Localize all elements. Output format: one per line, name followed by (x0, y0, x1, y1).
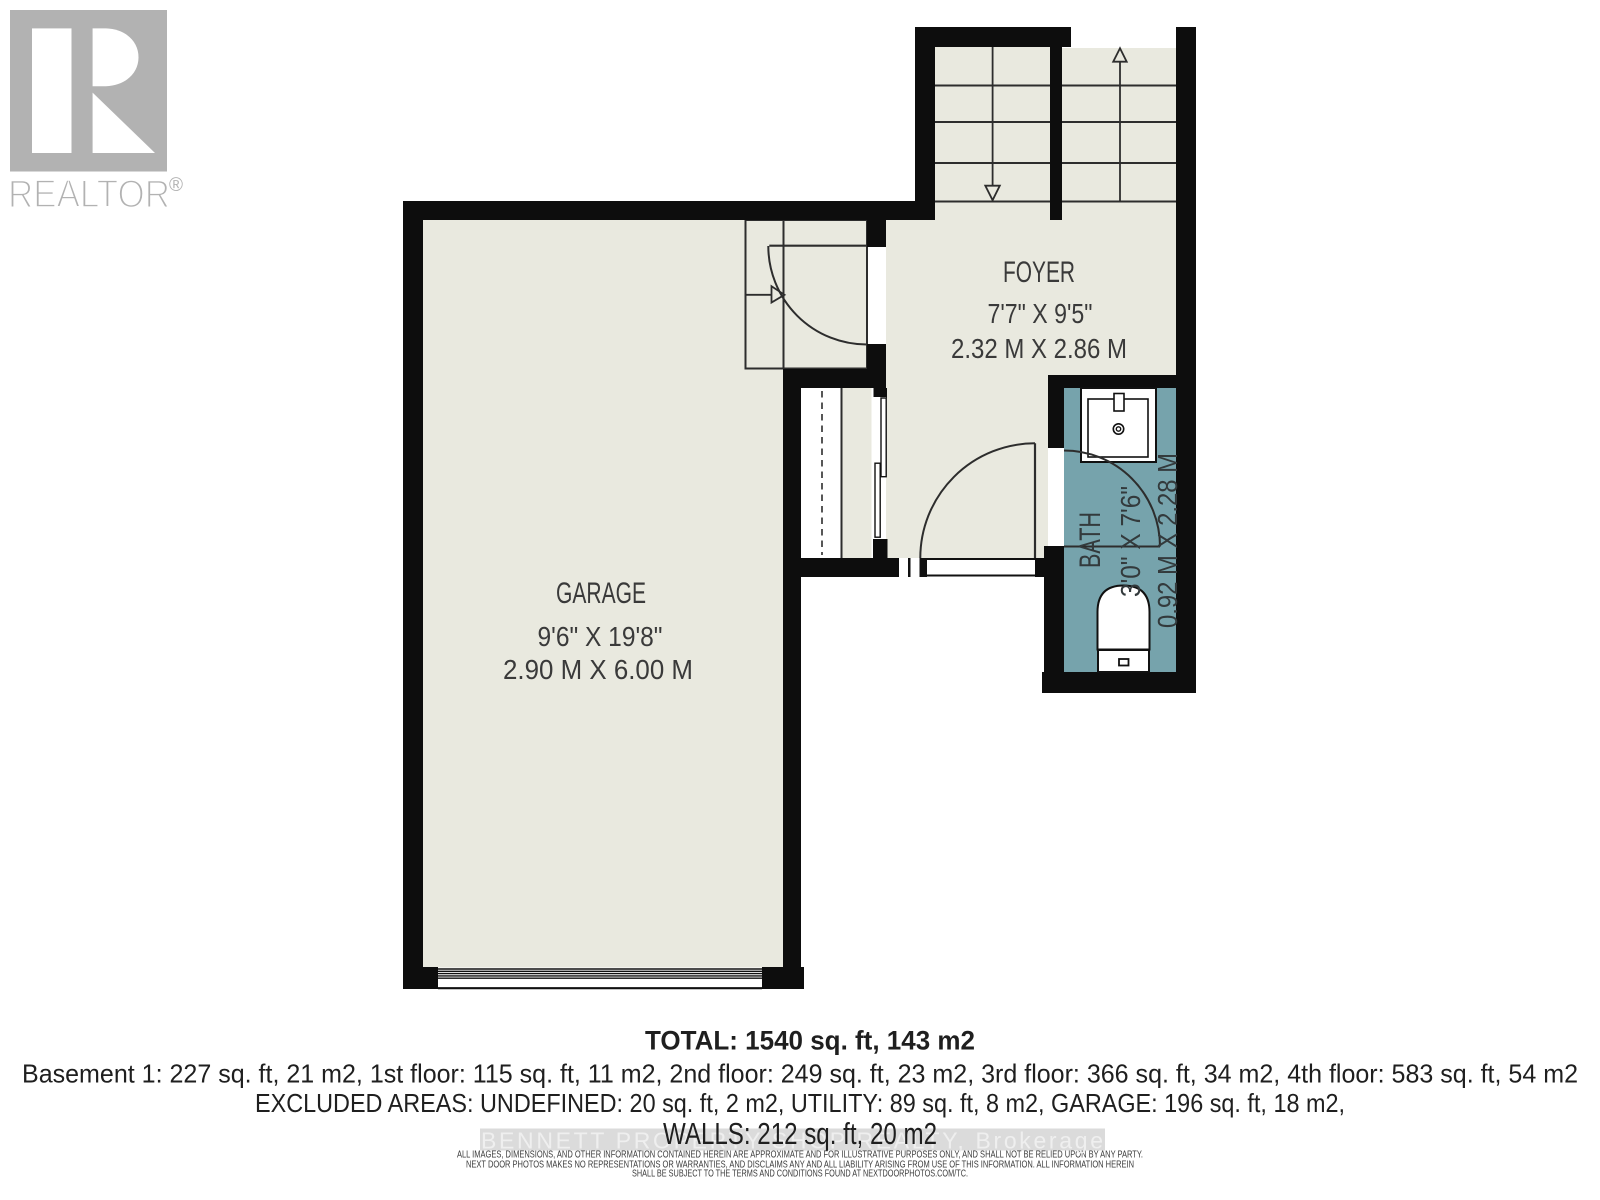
svg-text:®: ® (169, 175, 183, 196)
svg-text:7'7" X 9'5": 7'7" X 9'5" (988, 298, 1093, 329)
svg-text:WALLS: 212 sq. ft, 20 m2: WALLS: 212 sq. ft, 20 m2 (663, 1116, 937, 1151)
svg-text:EXCLUDED AREAS: UNDEFINED: 20: EXCLUDED AREAS: UNDEFINED: 20 sq. ft, 2 … (255, 1088, 1345, 1118)
svg-text:9'6" X 19'8": 9'6" X 19'8" (538, 621, 663, 652)
svg-text:TOTAL: 1540 sq. ft, 143 m2: TOTAL: 1540 sq. ft, 143 m2 (645, 1026, 975, 1056)
svg-text:SHALL BE SUBJECT TO THE TERMS: SHALL BE SUBJECT TO THE TERMS AND CONDIT… (632, 1169, 968, 1180)
svg-text:REALTOR: REALTOR (8, 173, 170, 216)
svg-text:FOYER: FOYER (1003, 256, 1075, 289)
svg-text:3'0" X 7'6": 3'0" X 7'6" (1115, 486, 1146, 597)
svg-text:GARAGE: GARAGE (556, 577, 646, 610)
svg-text:0.92 M X 2.28 M: 0.92 M X 2.28 M (1152, 453, 1183, 628)
svg-text:BATH: BATH (1074, 512, 1107, 568)
svg-text:2.32 M X 2.86 M: 2.32 M X 2.86 M (951, 333, 1127, 364)
svg-text:2.90 M X 6.00 M: 2.90 M X 6.00 M (503, 654, 693, 685)
svg-text:Basement 1: 227 sq. ft, 21 m2,: Basement 1: 227 sq. ft, 21 m2, 1st floor… (22, 1059, 1578, 1089)
